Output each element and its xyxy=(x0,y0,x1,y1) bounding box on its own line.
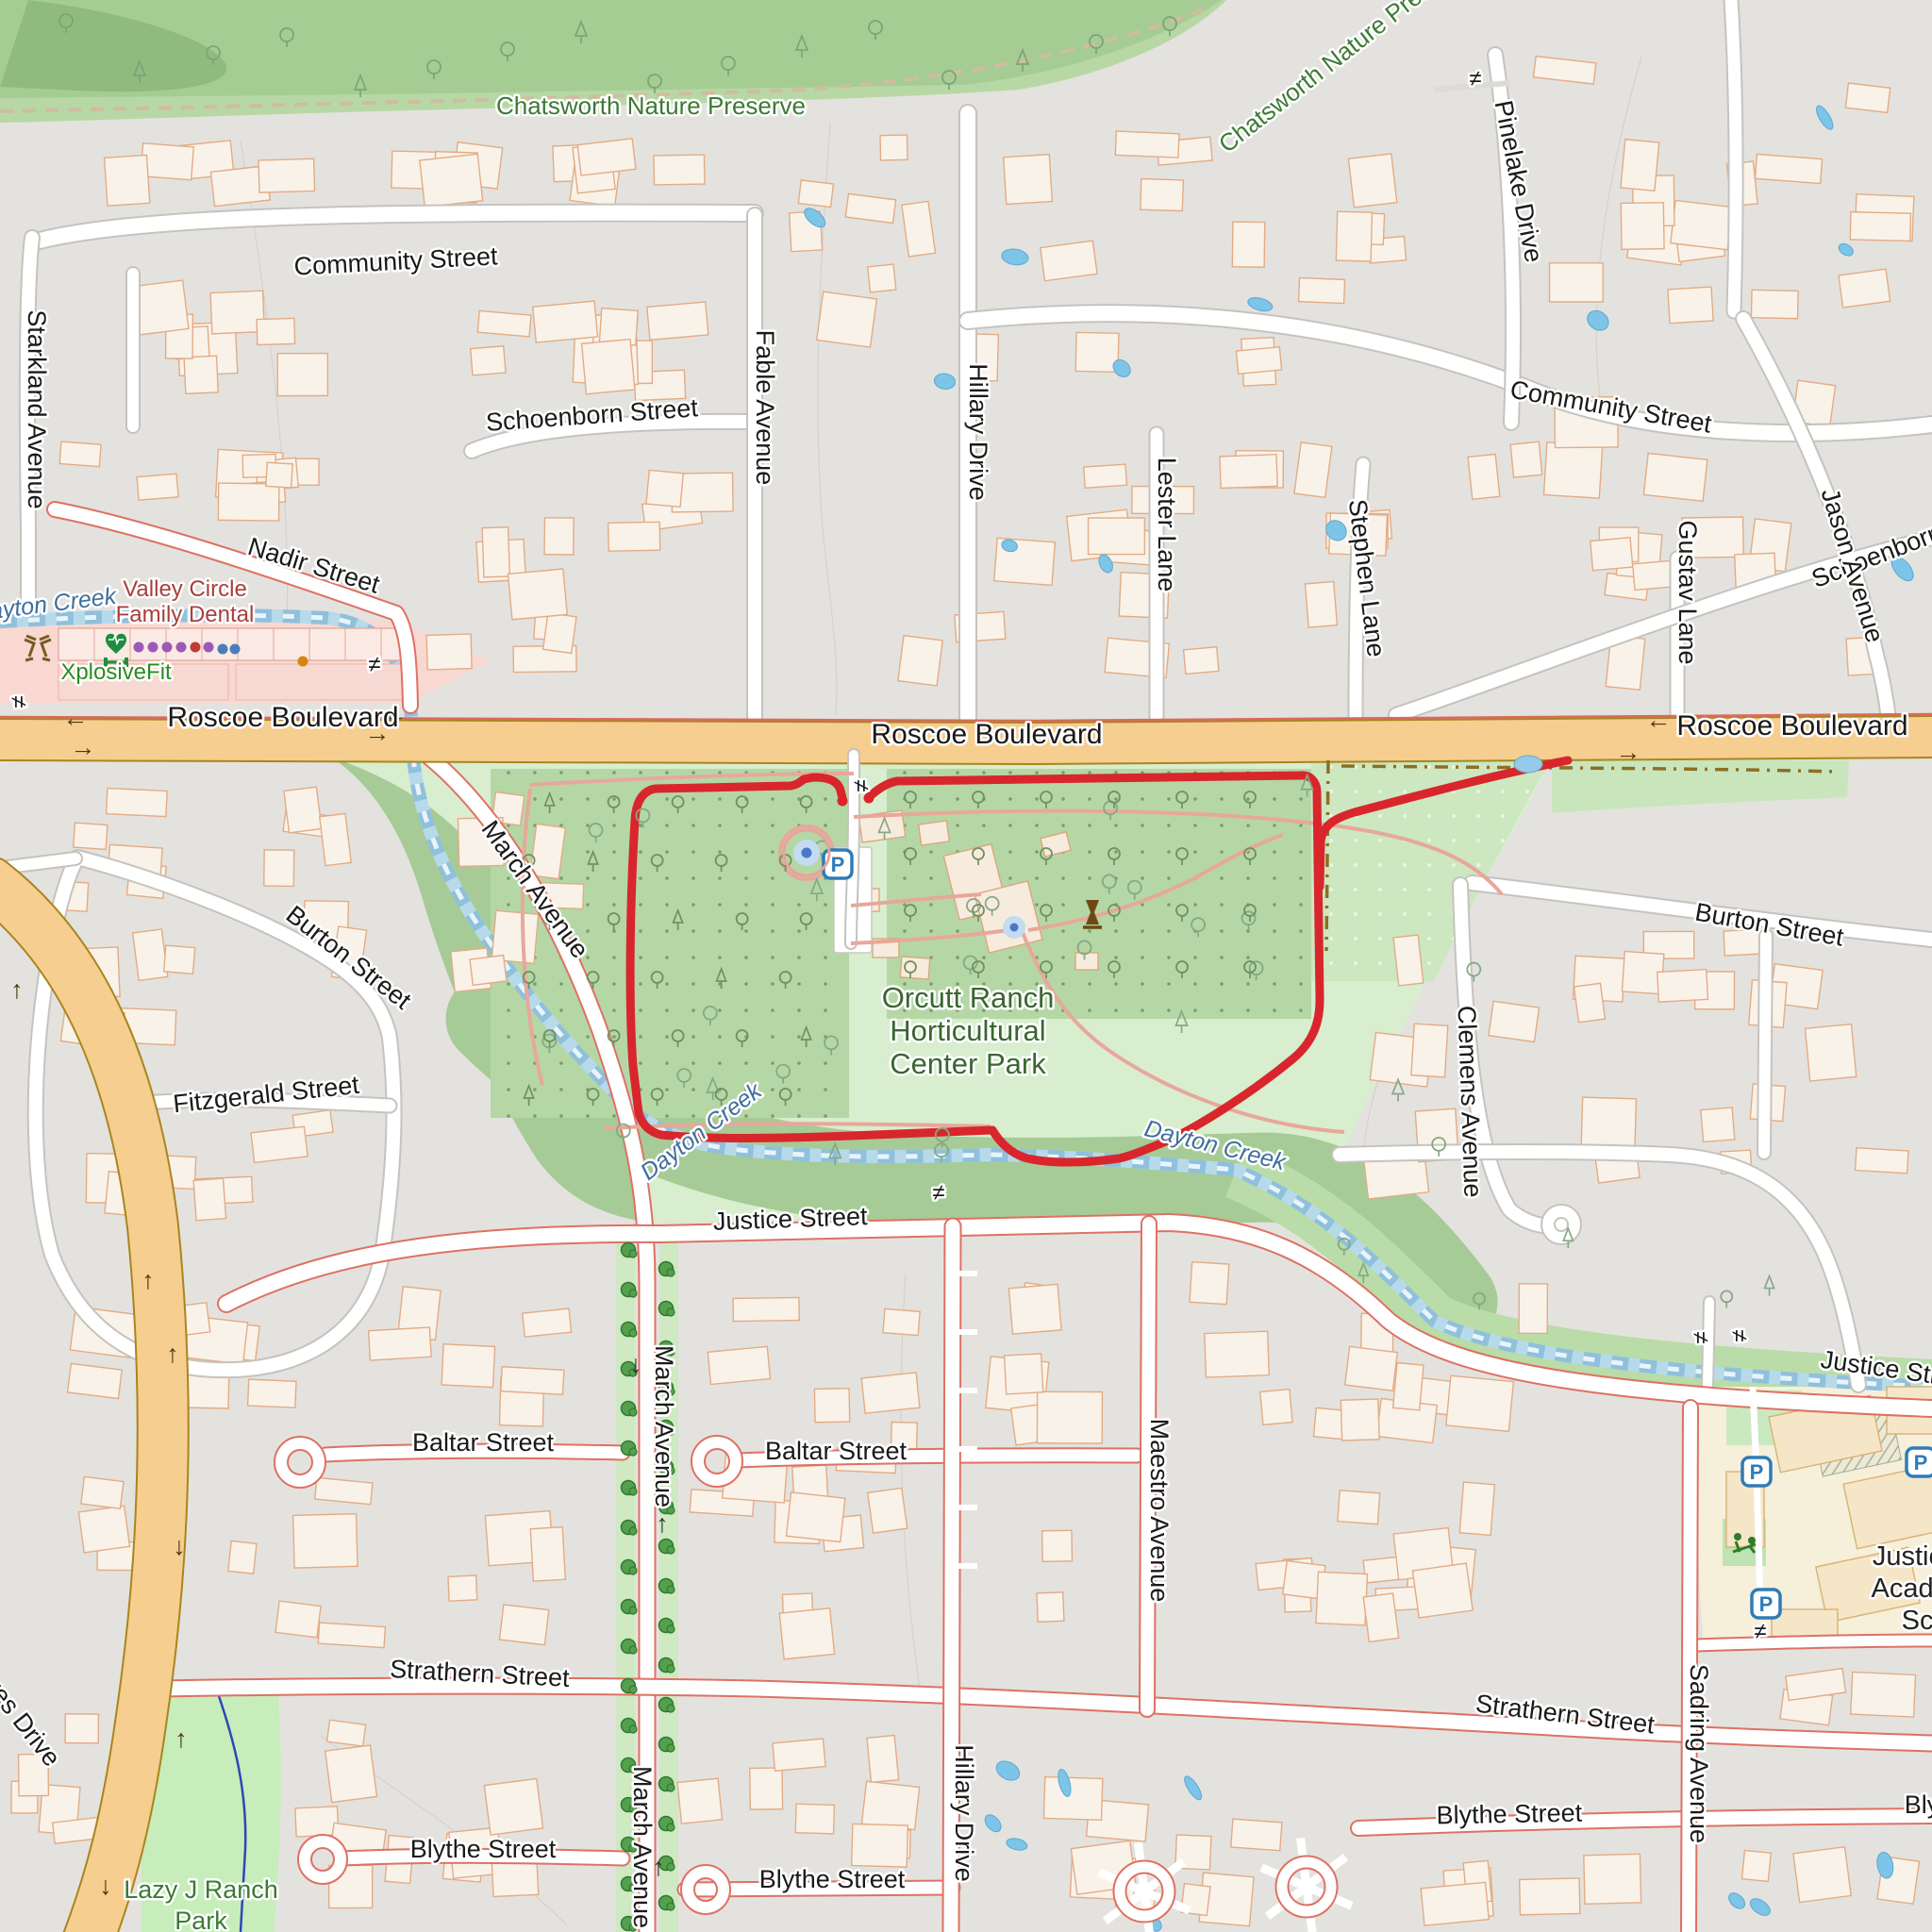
building xyxy=(315,1477,373,1504)
building xyxy=(1839,269,1890,308)
area-label: Horticultural xyxy=(890,1014,1045,1047)
building xyxy=(798,180,833,208)
building xyxy=(228,1541,257,1574)
building xyxy=(1519,1284,1547,1334)
svg-text:P: P xyxy=(1759,1592,1774,1616)
building xyxy=(1851,1672,1916,1717)
gate-icon: ≠ xyxy=(6,695,31,708)
street-tree-icon xyxy=(629,1329,637,1337)
poi-dot xyxy=(191,642,201,653)
building xyxy=(477,310,531,336)
building xyxy=(65,1714,98,1743)
building xyxy=(786,1492,844,1542)
street-label: Starkland Avenue xyxy=(23,309,51,508)
building xyxy=(264,850,294,887)
street-tree-icon xyxy=(629,1607,637,1614)
poi-dot xyxy=(176,642,187,653)
building xyxy=(1037,1391,1102,1443)
street-tree-icon xyxy=(667,1308,675,1316)
oneway-arrow-icon: → xyxy=(71,733,96,761)
building xyxy=(1232,222,1264,267)
building xyxy=(471,346,506,375)
building xyxy=(251,1126,308,1162)
street-tree-icon xyxy=(667,1269,675,1276)
building xyxy=(1336,211,1372,261)
building xyxy=(193,1178,225,1221)
building xyxy=(218,483,279,521)
street-tree-icon xyxy=(667,1586,675,1593)
oneway-arrow-icon: ↑ xyxy=(166,1340,179,1368)
building xyxy=(1510,441,1542,477)
area-label: Chatsworth Nature Preserve xyxy=(496,92,806,120)
building xyxy=(369,1327,432,1360)
minor-street-e2 xyxy=(1764,936,1766,1153)
gate-icon: ≠ xyxy=(1469,66,1481,92)
building xyxy=(1231,1819,1282,1851)
building xyxy=(1338,1491,1380,1524)
building xyxy=(107,789,168,817)
building xyxy=(523,1308,572,1337)
building xyxy=(499,1605,548,1645)
street-label: March Avenue xyxy=(628,1766,657,1928)
building xyxy=(318,1623,385,1648)
svg-text:P: P xyxy=(831,853,845,876)
building xyxy=(582,340,635,394)
gate-icon: ≠ xyxy=(848,779,874,791)
building xyxy=(647,302,708,340)
building xyxy=(646,470,683,507)
street-tree-icon xyxy=(629,1408,637,1416)
building xyxy=(577,139,636,175)
building xyxy=(1115,131,1179,158)
building xyxy=(1220,455,1277,489)
building xyxy=(74,823,108,849)
building xyxy=(1584,1854,1641,1904)
street-tree-icon xyxy=(629,1527,637,1535)
building xyxy=(1701,1108,1735,1142)
creek-crossing-lane xyxy=(1707,1302,1709,1387)
area-label: Park xyxy=(175,1907,227,1932)
building xyxy=(1043,1777,1102,1821)
building xyxy=(266,462,292,488)
building xyxy=(470,956,507,986)
building xyxy=(81,1476,124,1508)
building xyxy=(1306,582,1338,628)
svg-text:P: P xyxy=(1914,1451,1928,1474)
building xyxy=(795,1804,834,1834)
building xyxy=(78,1506,129,1553)
building xyxy=(293,1514,358,1568)
street-label: Hillary Drive xyxy=(964,363,992,501)
poi-dot xyxy=(218,644,228,655)
building xyxy=(533,301,598,342)
area-label: Lazy J Ranch xyxy=(124,1875,278,1904)
building xyxy=(1850,212,1910,241)
building xyxy=(1089,518,1145,555)
minor-street-ne xyxy=(1731,0,1736,311)
oneway-arrow-icon: ↑ xyxy=(10,975,24,1004)
building xyxy=(1260,1390,1292,1425)
route-endpoint xyxy=(838,796,848,807)
building xyxy=(1751,290,1798,318)
building xyxy=(1412,1563,1473,1618)
street-label: Baltar Street xyxy=(765,1437,908,1465)
building xyxy=(708,1346,770,1384)
street-label: Justice Street xyxy=(712,1202,868,1236)
building xyxy=(543,613,576,654)
street-tree-icon xyxy=(629,1250,637,1257)
gate-icon: ≠ xyxy=(1754,1619,1766,1644)
area-label: School xyxy=(1902,1606,1932,1636)
street-label: March Avenue xyxy=(650,1345,678,1507)
building xyxy=(773,1739,825,1771)
building xyxy=(1459,1482,1494,1535)
svg-text:P: P xyxy=(1750,1460,1764,1484)
building xyxy=(861,1373,920,1413)
building xyxy=(1520,1878,1580,1915)
building xyxy=(1190,1262,1229,1305)
building xyxy=(1141,179,1184,211)
street-label: Blythe Street xyxy=(410,1835,557,1863)
building xyxy=(1741,1851,1771,1882)
building xyxy=(1184,647,1219,675)
building xyxy=(1756,154,1823,183)
street-tree-icon xyxy=(667,1903,675,1910)
building xyxy=(1657,970,1708,1002)
building xyxy=(248,1379,296,1407)
area-label: Justice xyxy=(1873,1541,1932,1572)
building xyxy=(867,1736,899,1783)
building xyxy=(814,1389,849,1423)
street-tree-icon xyxy=(629,1646,637,1654)
map-viewport[interactable]: openstreetmap-style street map with GPS … xyxy=(0,0,1932,1932)
street-tree-icon xyxy=(629,1686,637,1693)
building xyxy=(1042,1530,1073,1561)
oneway-arrow-icon: ↓ xyxy=(99,1872,112,1900)
building xyxy=(1805,1024,1856,1081)
building xyxy=(852,1824,908,1867)
building xyxy=(295,1807,339,1837)
street-tree-icon xyxy=(629,1290,637,1297)
oneway-arrow-icon: ← xyxy=(1646,706,1672,734)
building xyxy=(898,636,942,686)
building xyxy=(1668,287,1713,324)
building xyxy=(1008,1284,1061,1334)
building xyxy=(1411,1024,1448,1077)
building xyxy=(184,356,218,393)
street-tree-icon xyxy=(667,1863,675,1871)
building xyxy=(484,1778,542,1835)
building xyxy=(482,527,509,577)
street-label: Roscoe Boulevard xyxy=(871,719,1102,750)
street-tree-icon xyxy=(629,1488,637,1495)
parking-icon: P xyxy=(1907,1448,1932,1476)
pond xyxy=(1514,756,1542,773)
building xyxy=(508,569,568,620)
building xyxy=(1084,464,1127,488)
building xyxy=(750,1768,783,1809)
building xyxy=(1041,241,1097,281)
building xyxy=(817,291,877,347)
street-label: Blythe Street xyxy=(1905,1790,1932,1819)
building xyxy=(320,813,352,865)
street-label: Blythe Street xyxy=(759,1865,906,1893)
building xyxy=(137,474,178,500)
street-tree-icon xyxy=(667,1744,675,1752)
street-label: Blythe Street xyxy=(1436,1799,1583,1830)
building xyxy=(258,158,315,192)
area-label: Center Park xyxy=(890,1047,1046,1080)
building xyxy=(1236,347,1281,375)
street-label: Fable Avenue xyxy=(751,330,779,486)
building xyxy=(1621,203,1664,250)
building xyxy=(1574,983,1606,1022)
poi-dot xyxy=(230,644,241,655)
building xyxy=(733,1297,799,1321)
gate-icon: ≠ xyxy=(1688,1331,1713,1343)
building xyxy=(1421,1882,1489,1925)
building xyxy=(1581,1097,1636,1147)
area-label: Orcutt Ranch xyxy=(882,981,1055,1014)
building xyxy=(880,135,908,160)
building xyxy=(275,1601,321,1638)
place-label: XplosiveFit xyxy=(60,659,172,685)
building xyxy=(164,945,195,974)
parking-icon: P xyxy=(1742,1457,1771,1486)
fountain-icon xyxy=(1003,916,1025,939)
street-label: Hillary Drive xyxy=(950,1744,978,1882)
building xyxy=(1037,1592,1064,1623)
oneway-arrow-icon: ↑ xyxy=(175,1724,188,1753)
building xyxy=(441,1344,495,1388)
building xyxy=(1468,454,1500,499)
building xyxy=(1341,1399,1379,1441)
building xyxy=(1299,277,1345,303)
gate-icon: ≠ xyxy=(1726,1329,1752,1341)
park-building xyxy=(1075,953,1098,970)
building xyxy=(1075,332,1119,372)
street-tree-icon xyxy=(629,1448,637,1456)
building xyxy=(257,318,295,344)
building xyxy=(1591,538,1633,571)
building xyxy=(779,1608,834,1659)
building xyxy=(544,518,574,555)
street-tree-icon xyxy=(667,1625,675,1633)
street-tree-icon xyxy=(667,1546,675,1554)
poi-dot xyxy=(148,642,158,653)
building xyxy=(1005,1354,1043,1394)
building xyxy=(868,1488,908,1533)
route-endpoint xyxy=(864,793,874,804)
building xyxy=(1856,1148,1908,1174)
building xyxy=(501,1367,564,1394)
building xyxy=(1489,1001,1540,1041)
building xyxy=(1345,1346,1398,1391)
building xyxy=(1393,1363,1424,1410)
building xyxy=(284,787,322,833)
street-label: Maestro Avenue xyxy=(1145,1419,1174,1603)
place-label: Valley Circle xyxy=(123,576,247,602)
area-label: Academy xyxy=(1872,1574,1932,1604)
building xyxy=(1205,1331,1270,1377)
building xyxy=(1004,155,1053,205)
building xyxy=(105,155,150,206)
building xyxy=(277,354,327,396)
building xyxy=(68,1363,123,1398)
building xyxy=(1446,1375,1514,1431)
plaza-building xyxy=(236,664,409,700)
building xyxy=(883,1308,920,1335)
parking-icon: P xyxy=(1752,1590,1780,1618)
street-label: Lester Lane xyxy=(1153,458,1181,592)
building xyxy=(420,154,483,207)
street-label: Roscoe Boulevard xyxy=(1676,710,1907,741)
building xyxy=(1671,200,1733,249)
oneway-arrow-icon: ↓ xyxy=(173,1532,186,1560)
building xyxy=(1793,1847,1851,1903)
building xyxy=(1316,1572,1367,1625)
gate-icon: ≠ xyxy=(932,1180,944,1206)
poi-dot xyxy=(204,642,214,653)
park-building xyxy=(919,821,950,845)
poi-dot xyxy=(162,642,173,653)
street-tree-icon xyxy=(629,1725,637,1733)
building xyxy=(1393,935,1424,986)
gate-icon: ≠ xyxy=(368,652,380,677)
street-label: Gustav Lane xyxy=(1674,520,1702,664)
poi-dot xyxy=(134,642,144,653)
building xyxy=(1550,263,1604,302)
building xyxy=(868,264,896,292)
building xyxy=(448,1575,477,1601)
poi-dot xyxy=(298,657,308,667)
street-tree-icon xyxy=(667,1665,675,1673)
street-label: Roscoe Boulevard xyxy=(167,702,398,733)
building xyxy=(1845,83,1890,112)
oneway-arrow-icon: → xyxy=(1616,738,1641,766)
building xyxy=(608,522,660,551)
building xyxy=(133,929,168,980)
street-tree-icon xyxy=(667,1784,675,1791)
building xyxy=(325,1745,377,1803)
street-label: Baltar Street xyxy=(412,1428,555,1457)
building xyxy=(530,1527,565,1581)
oneway-arrow-icon: ↑ xyxy=(142,1266,155,1294)
building xyxy=(1348,154,1396,208)
building xyxy=(1621,140,1659,192)
oneway-arrow-icon: ← xyxy=(63,704,89,732)
street-tree-icon xyxy=(667,1824,675,1831)
building xyxy=(654,155,705,185)
place-label: Family Dental xyxy=(116,602,255,627)
building xyxy=(677,1778,722,1824)
building xyxy=(1643,453,1707,501)
street-tree-icon xyxy=(667,1705,675,1712)
building xyxy=(327,1720,366,1746)
street-tree-icon xyxy=(629,1567,637,1574)
park-orchard-west xyxy=(491,769,849,1118)
building xyxy=(426,634,472,670)
oneway-arrow-icon: ↑ xyxy=(656,1509,669,1538)
building xyxy=(861,1781,919,1829)
building xyxy=(1294,442,1332,497)
oneway-arrow-icon: ↓ xyxy=(629,1350,642,1378)
building xyxy=(1543,442,1602,498)
street-label: Sadring Avenue xyxy=(1685,1664,1713,1843)
building xyxy=(59,441,101,467)
map-canvas[interactable]: openstreetmap-style street map with GPS … xyxy=(0,0,1932,1932)
building xyxy=(1363,1593,1399,1642)
school-south-road xyxy=(1696,1641,1932,1645)
